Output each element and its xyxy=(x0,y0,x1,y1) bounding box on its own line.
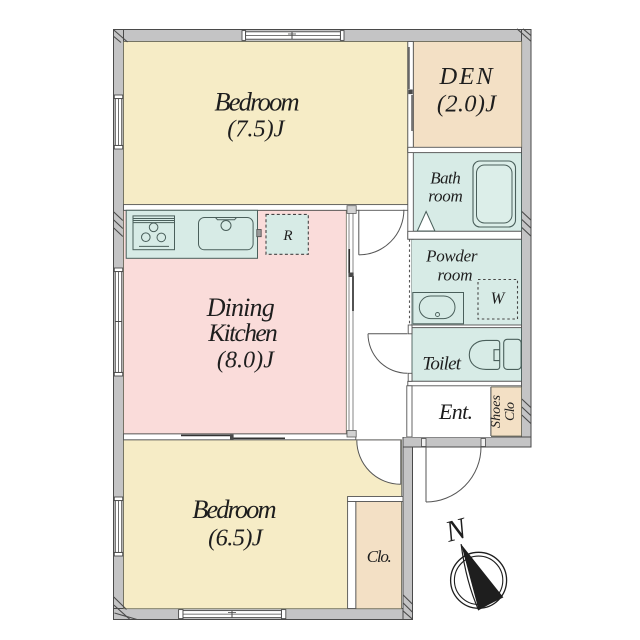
svg-text:(8.0)J: (8.0)J xyxy=(217,348,275,374)
svg-text:R: R xyxy=(282,228,292,244)
svg-text:Clo: Clo xyxy=(503,402,518,421)
svg-text:Powder: Powder xyxy=(425,247,478,266)
svg-text:Bedroom: Bedroom xyxy=(214,87,299,117)
svg-text:DEN: DEN xyxy=(438,63,494,90)
svg-text:Kitchen: Kitchen xyxy=(207,318,278,347)
svg-text:(7.5)J: (7.5)J xyxy=(227,116,285,143)
svg-text:(2.0)J: (2.0)J xyxy=(437,90,497,117)
svg-text:Ent.: Ent. xyxy=(438,399,473,424)
svg-text:Toilet: Toilet xyxy=(422,354,461,375)
svg-text:room: room xyxy=(428,187,463,206)
svg-text:W: W xyxy=(491,289,506,308)
svg-text:Bedroom: Bedroom xyxy=(192,494,276,524)
svg-text:room: room xyxy=(438,266,473,285)
svg-text:Bath: Bath xyxy=(430,168,461,187)
svg-text:Shoes: Shoes xyxy=(489,394,504,428)
svg-text:Clo.: Clo. xyxy=(367,547,392,566)
svg-text:(6.5)J: (6.5)J xyxy=(208,524,264,551)
